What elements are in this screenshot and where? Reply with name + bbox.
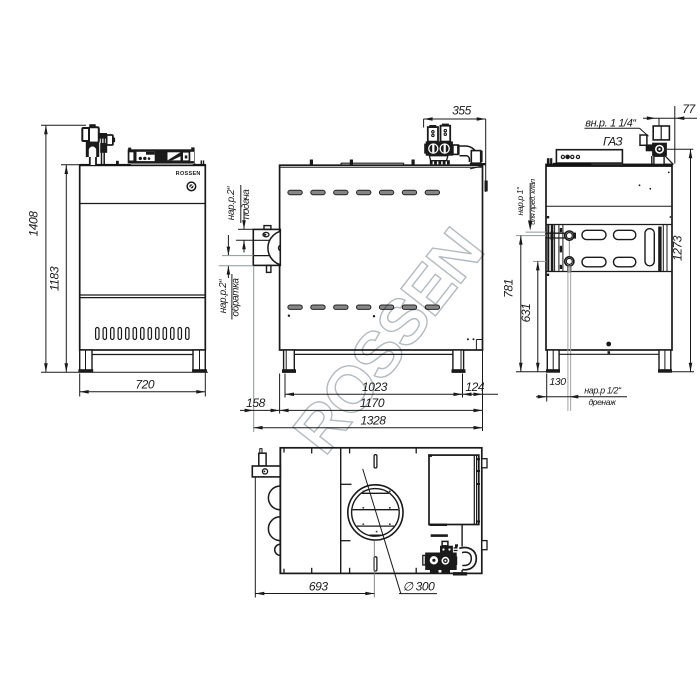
svg-text:1183: 1183 (48, 266, 62, 291)
svg-text:158: 158 (246, 396, 266, 410)
svg-text:обратка: обратка (230, 278, 242, 317)
svg-text:ROSSEN: ROSSEN (176, 171, 201, 177)
svg-text:781: 781 (502, 279, 516, 298)
svg-text:693: 693 (309, 579, 329, 593)
svg-text:ГАЗ: ГАЗ (603, 134, 623, 148)
svg-text:∅ 300: ∅ 300 (403, 579, 436, 593)
svg-text:подача: подача (241, 189, 252, 220)
svg-text:для пред. клап: для пред. клап (528, 179, 537, 225)
svg-text:130: 130 (549, 376, 566, 388)
svg-text:77: 77 (682, 102, 696, 116)
svg-text:нар.р 1/2“: нар.р 1/2“ (584, 386, 622, 396)
svg-text:1273: 1273 (671, 235, 685, 261)
svg-text:нар.р 1“: нар.р 1“ (515, 186, 525, 216)
svg-text:дренаж: дренаж (588, 397, 617, 407)
svg-text:124: 124 (465, 380, 485, 394)
svg-text:нар.р.2“: нар.р.2“ (226, 186, 237, 221)
svg-text:355: 355 (452, 104, 472, 118)
svg-text:720: 720 (135, 377, 155, 391)
svg-text:1408: 1408 (27, 211, 41, 237)
svg-text:нар.р.2“: нар.р.2“ (218, 279, 229, 314)
svg-text:631: 631 (519, 304, 533, 323)
